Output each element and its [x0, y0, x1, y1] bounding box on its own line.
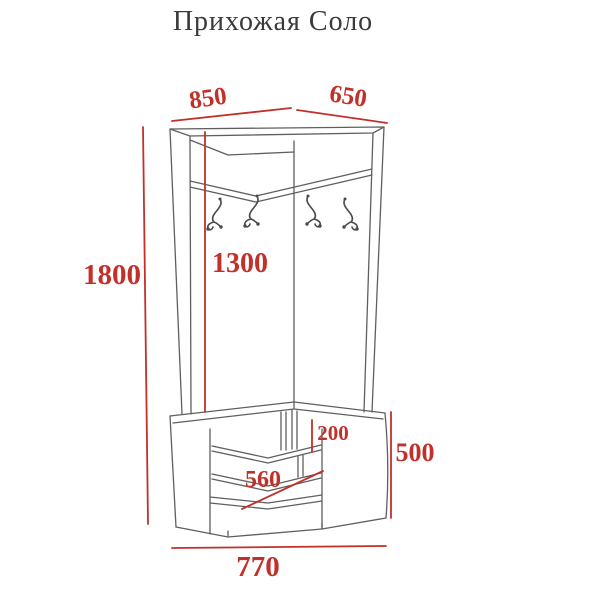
dim-label-1800: 1800 — [83, 259, 141, 291]
hook-tip — [307, 195, 310, 198]
hook-tip — [344, 198, 347, 201]
dim-label-200: 200 — [317, 421, 349, 445]
cabinet-bottom-outline — [176, 518, 386, 537]
coat-hook-4 — [342, 198, 358, 231]
dim-line-650 — [297, 110, 387, 123]
upper-shelf-front-edge — [190, 169, 372, 196]
hook-ball-right — [256, 222, 259, 225]
hook-glyph — [344, 199, 357, 230]
coat-hooks — [206, 195, 358, 231]
top-panel — [170, 127, 384, 136]
diagram-canvas: Прихожая Соло — [0, 0, 600, 600]
coat-hook-1 — [206, 198, 222, 231]
coat-hook-3 — [305, 195, 321, 228]
niche-floor-top — [210, 495, 322, 503]
hook-ball-left — [355, 227, 358, 230]
niche-shelf1-bottom — [212, 450, 321, 463]
hook-ball-left — [206, 227, 209, 230]
hook-ball-right — [305, 222, 308, 225]
hook-glyph — [208, 199, 221, 230]
hook-ball-left — [243, 224, 246, 227]
right-side-outer-edge — [372, 127, 384, 412]
niche-shelf1-top — [212, 445, 321, 458]
bench-seat-top-edge — [170, 402, 385, 416]
cabinet-left-edge — [170, 416, 176, 527]
dim-label-500: 500 — [396, 438, 435, 467]
dim-line-770 — [172, 546, 386, 548]
dim-line-1800 — [143, 127, 148, 524]
hook-tip — [256, 195, 259, 198]
hook-ball-left — [318, 224, 321, 227]
hook-tip — [219, 198, 222, 201]
furniture-drawing: 850 650 1800 1300 200 560 500 770 — [0, 0, 600, 600]
left-side-inner-edge — [190, 136, 191, 414]
dim-label-850: 850 — [188, 83, 229, 115]
dim-label-1300: 1300 — [212, 248, 268, 279]
hook-ball-right — [219, 225, 222, 228]
dim-label-560: 560 — [245, 467, 281, 493]
cabinet-right-edge — [385, 413, 388, 518]
hook-ball-right — [342, 225, 345, 228]
dim-label-650: 650 — [328, 80, 369, 113]
hook-glyph — [307, 196, 320, 227]
dim-label-770: 770 — [236, 551, 280, 583]
left-side-outer-edge — [170, 129, 182, 414]
